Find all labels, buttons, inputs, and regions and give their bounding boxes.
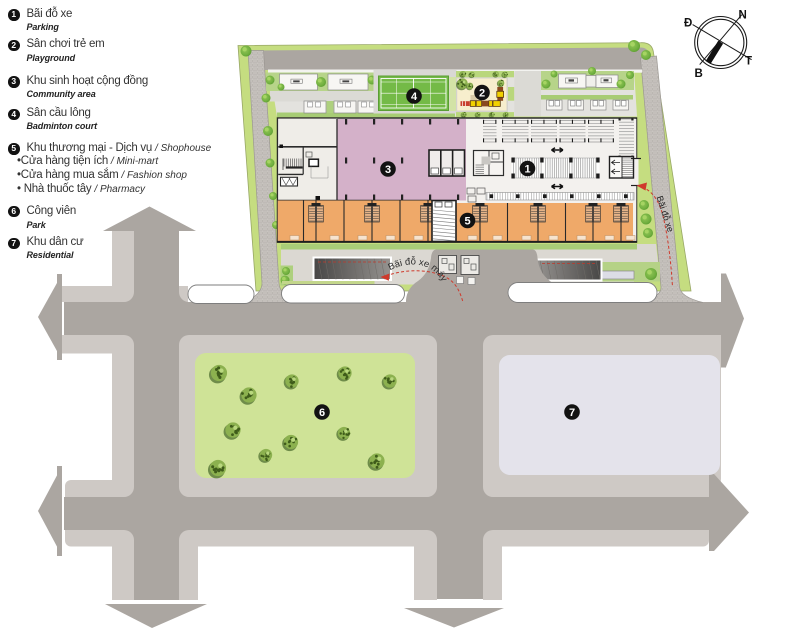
svg-text:B: B [695, 68, 703, 80]
svg-text:7: 7 [569, 407, 575, 419]
svg-text:1: 1 [524, 163, 530, 175]
svg-text:5: 5 [464, 215, 470, 227]
svg-text:4: 4 [411, 91, 418, 103]
svg-text:6: 6 [319, 407, 325, 419]
svg-text:2: 2 [479, 87, 485, 99]
svg-text:3: 3 [385, 164, 391, 176]
svg-text:T: T [745, 56, 752, 68]
svg-text:Đ: Đ [684, 18, 692, 30]
svg-text:N: N [739, 10, 747, 22]
